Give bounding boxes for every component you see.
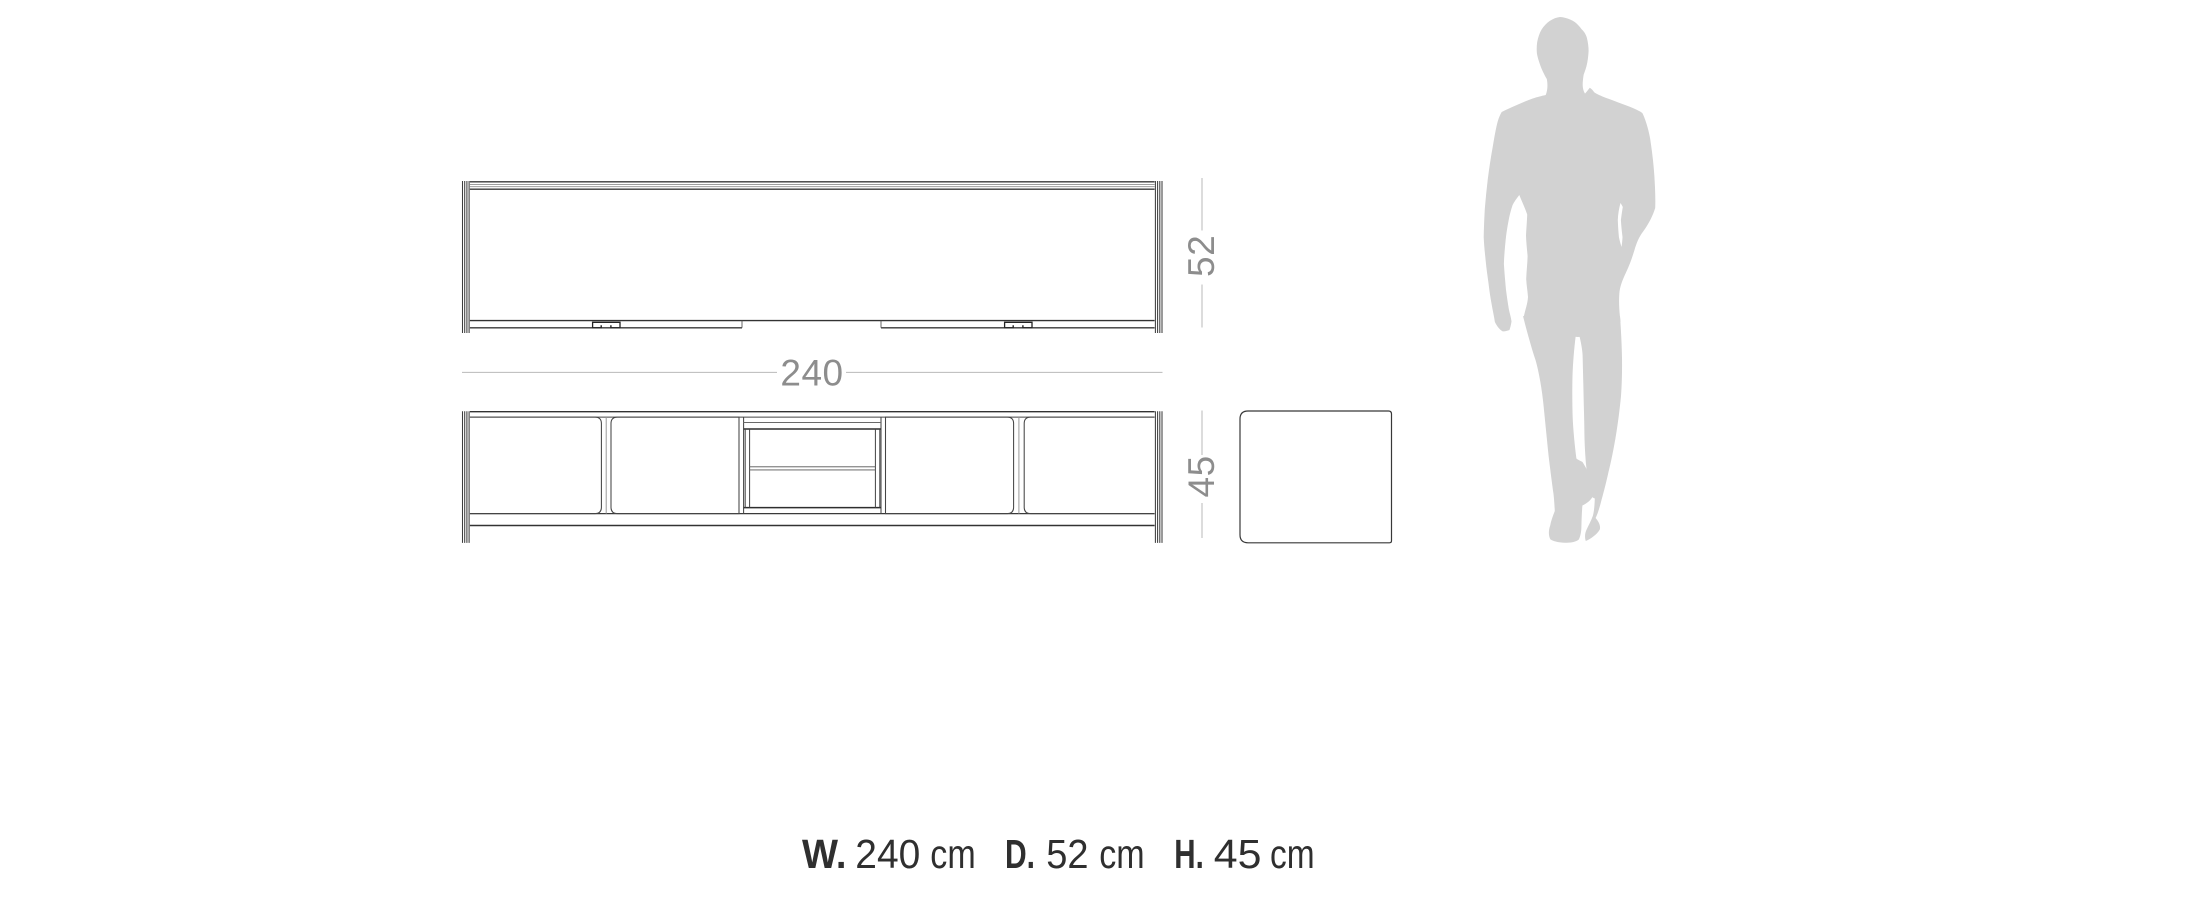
svg-text:45: 45	[1214, 831, 1262, 877]
svg-text:cm: cm	[1099, 831, 1144, 877]
svg-text:52: 52	[1181, 235, 1222, 277]
svg-text:240: 240	[780, 353, 843, 394]
svg-text:D.: D.	[1005, 831, 1035, 877]
svg-text:45: 45	[1181, 455, 1222, 497]
svg-text:H.: H.	[1174, 831, 1204, 877]
svg-text:52: 52	[1046, 831, 1088, 877]
svg-text:W.: W.	[802, 831, 847, 877]
svg-text:240: 240	[855, 831, 920, 877]
svg-text:cm: cm	[1270, 831, 1315, 877]
svg-text:cm: cm	[930, 831, 975, 877]
